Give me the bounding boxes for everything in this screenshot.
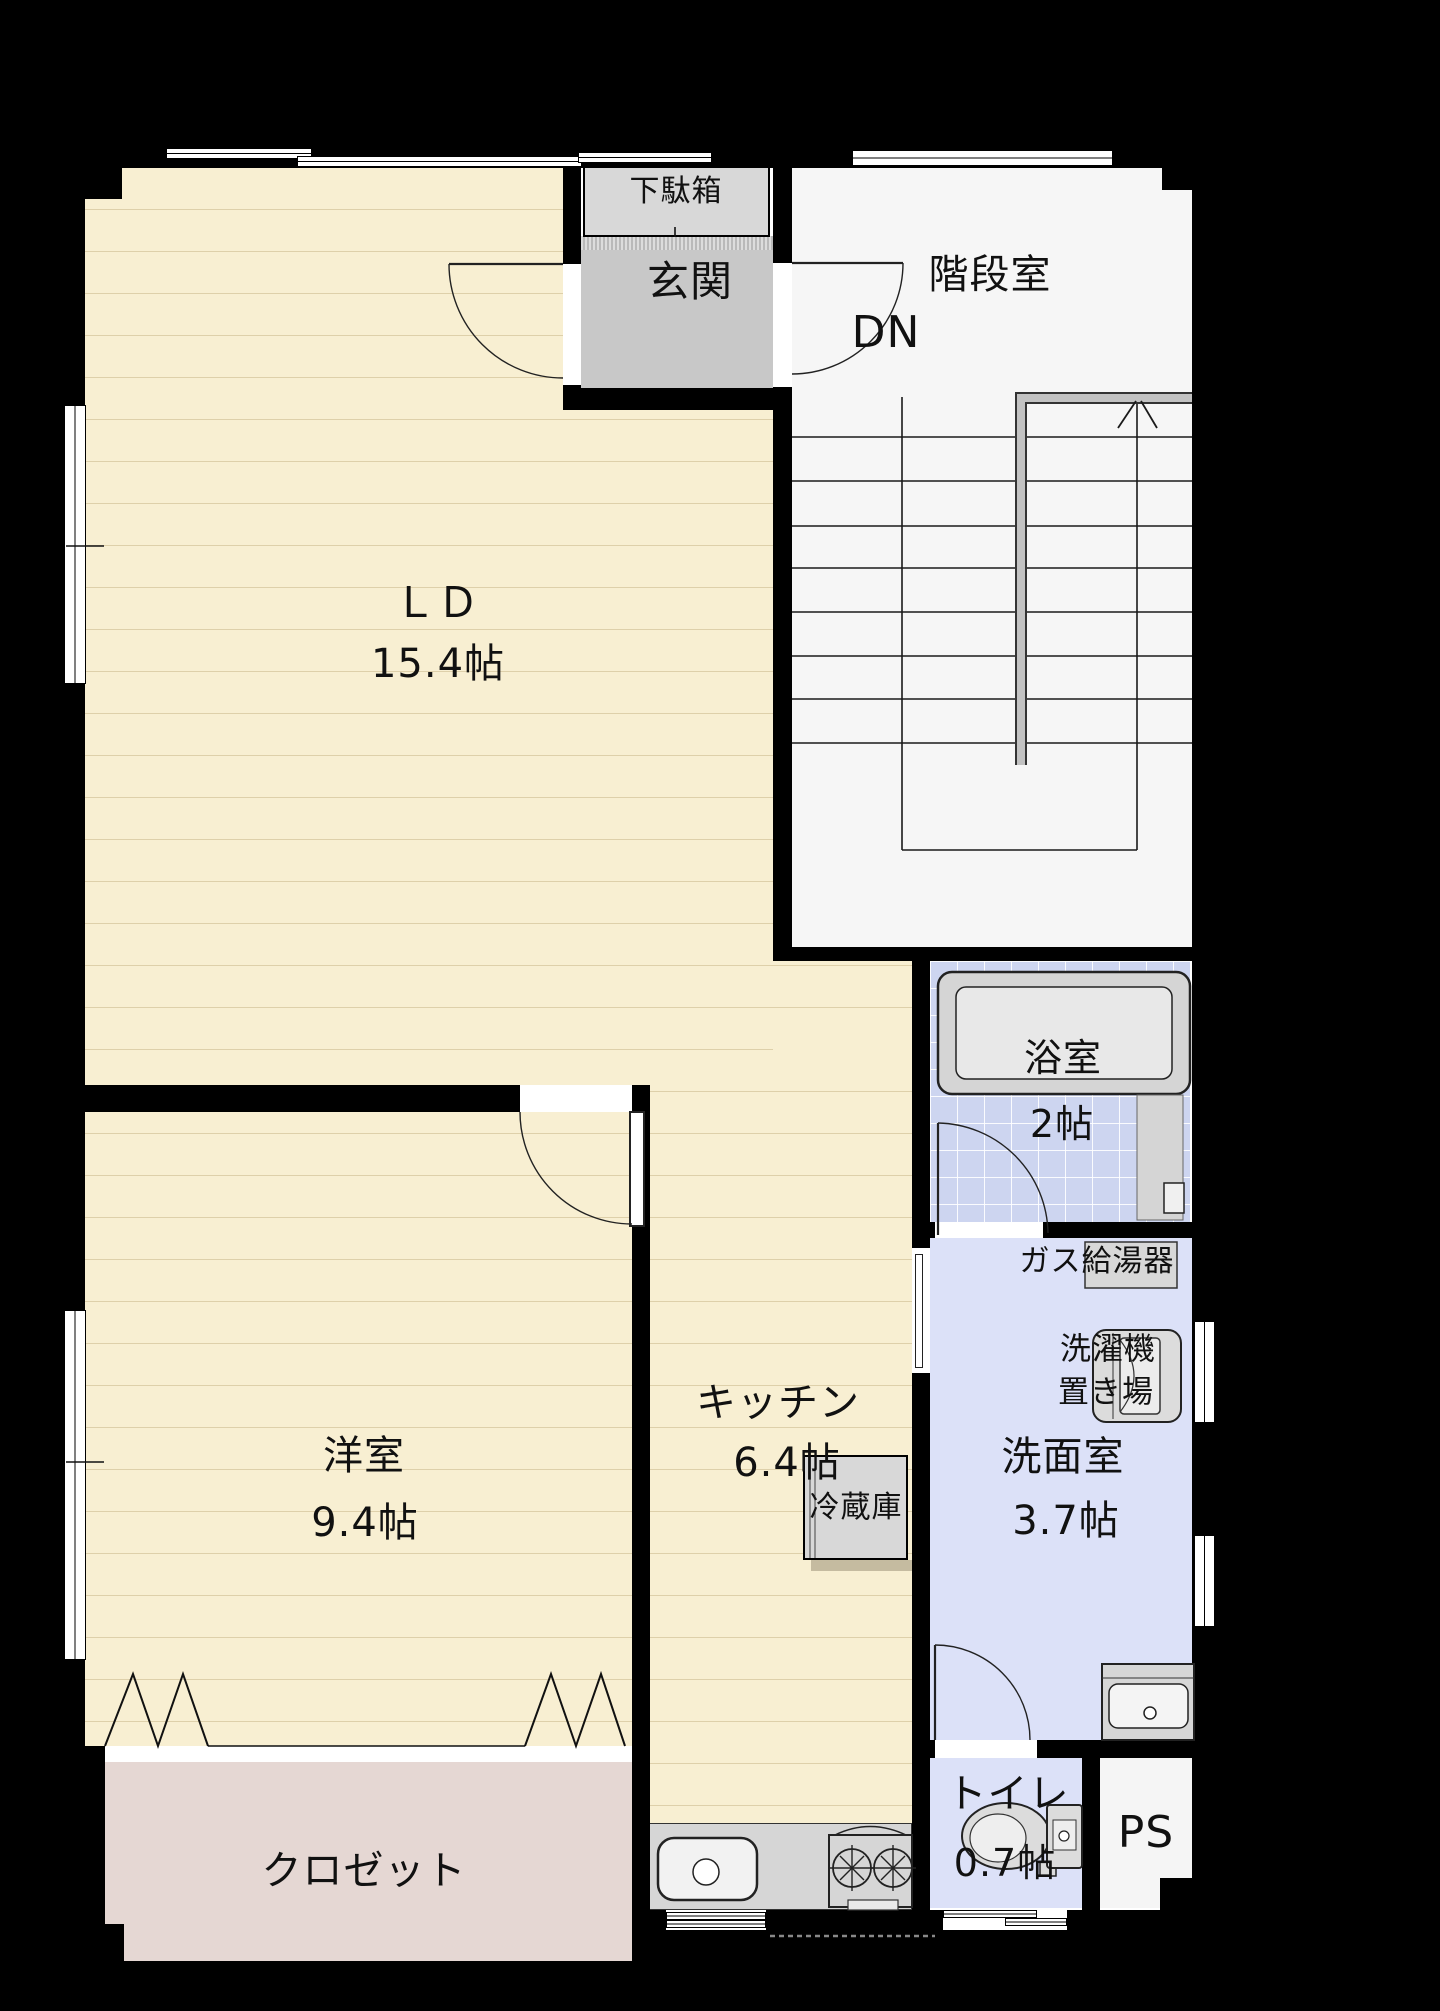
wall-kitchen-washroom-upper: [912, 961, 930, 1248]
bath-label: 浴室: [1024, 1039, 1102, 1077]
window-kitchen-bottom-2: [666, 1920, 766, 1928]
wall-stairwell-left-lower: [773, 387, 792, 947]
window-toilet-bottom-2: [1005, 1918, 1067, 1926]
washroom-sliding-door: [915, 1254, 923, 1368]
window-ld-top-1: [166, 148, 312, 159]
washroom-label: 洗面室: [1002, 1437, 1125, 1477]
wall-kitchen-washroom-lower: [912, 1373, 930, 1910]
wall-washroom-bottom-left: [928, 1740, 935, 1758]
wall-bottom-1: [632, 1910, 666, 1930]
wall-ld-entrance-upper: [563, 150, 581, 264]
pipe-space-floor-lower: [1100, 1878, 1160, 1908]
window-western-left: [64, 1310, 86, 1660]
western-room-label: 洋室: [323, 1436, 405, 1476]
accordion-opening: [105, 1746, 632, 1762]
wall-ld-western-left: [85, 1085, 520, 1112]
shoe-cabinet-label: 下駄箱: [630, 177, 723, 207]
wall-washroom-bottom-right: [1037, 1740, 1192, 1758]
bath-floor: [930, 961, 1190, 1222]
kitchen-size: 6.4帖: [733, 1443, 841, 1483]
window-entrance-top: [578, 152, 712, 163]
washroom-size: 3.7帖: [1012, 1501, 1120, 1541]
window-washroom-right-1: [1194, 1321, 1215, 1423]
wall-closet-bottom: [62, 1961, 650, 1985]
mask-bottom-right: [650, 1930, 1213, 1985]
western-room-floor: [85, 1112, 632, 1746]
stairwell-direction-label: DN: [852, 311, 921, 355]
wall-western-kitchen: [632, 1112, 650, 1985]
wall-bath-bottom-left: [912, 1222, 935, 1238]
wall-stairwell-bottom: [773, 947, 1195, 961]
toilet-size: 0.7帖: [954, 1844, 1056, 1882]
wall-ps-notch: [1160, 1878, 1213, 1933]
wall-entrance-bottom: [563, 388, 792, 410]
western-room-size: 9.4帖: [311, 1503, 419, 1543]
washroom-floor: [928, 1238, 1192, 1740]
wall-closet-left: [62, 1746, 105, 1985]
doorway-ld-entrance: [563, 264, 581, 385]
closet-label: クロゼット: [262, 1851, 467, 1891]
gas-water-heater-label: ガス給湯器: [1020, 1247, 1175, 1277]
doorway-bath: [935, 1222, 1043, 1238]
wall-stairwell-left-upper: [773, 168, 792, 263]
window-kitchen-bottom-1: [666, 1912, 766, 1920]
wall-stairwell-notch: [1162, 168, 1192, 190]
entrance-label: 玄関: [647, 261, 733, 303]
wall-bath-bottom-right: [1043, 1222, 1192, 1238]
floor-plan: ＬＤ 15.4帖 玄関 下駄箱 階段室 DN 洋室 9.4帖 キッチン 6.4帖…: [0, 0, 1440, 2011]
washer-space-label-2: 置き場: [1058, 1378, 1154, 1409]
wall-closet-notch: [105, 1924, 124, 1961]
wall-bottom-2: [766, 1910, 943, 1930]
pipe-space-label: PS: [1118, 1811, 1174, 1855]
refrigerator-label: 冷蔵庫: [810, 1493, 903, 1523]
ld-size: 15.4帖: [371, 644, 505, 684]
washer-space-label-1: 洗濯機: [1060, 1335, 1156, 1366]
wall-right: [1192, 150, 1213, 1933]
bath-size: 2帖: [1030, 1105, 1094, 1143]
wall-toilet-ps: [1082, 1758, 1100, 1910]
refrigerator-shadow: [811, 1560, 913, 1571]
doorway-toilet: [935, 1740, 1037, 1758]
entrance-sill: [581, 236, 773, 250]
kitchen-label: キッチン: [696, 1383, 860, 1423]
ld-floor-under-entrance: [563, 410, 773, 1085]
window-ld-top-2: [297, 156, 582, 167]
wall-ld-western-right: [632, 1085, 650, 1112]
window-toilet-bottom-1: [943, 1910, 1037, 1918]
corridor-floor: [773, 961, 912, 1085]
ld-label: ＬＤ: [394, 582, 480, 624]
window-washroom-right-2: [1194, 1535, 1215, 1627]
doorway-entrance-stairwell: [773, 263, 792, 387]
ld-floor-top: [122, 168, 563, 199]
window-stairwell-top: [852, 150, 1113, 166]
kitchen-counter: [649, 1823, 912, 1910]
doorway-ld-western: [520, 1085, 632, 1112]
toilet-label: トイレ: [947, 1774, 1070, 1814]
stairwell-label: 階段室: [929, 255, 1052, 295]
window-ld-left: [64, 405, 86, 684]
wall-topleft-step: [62, 150, 122, 199]
